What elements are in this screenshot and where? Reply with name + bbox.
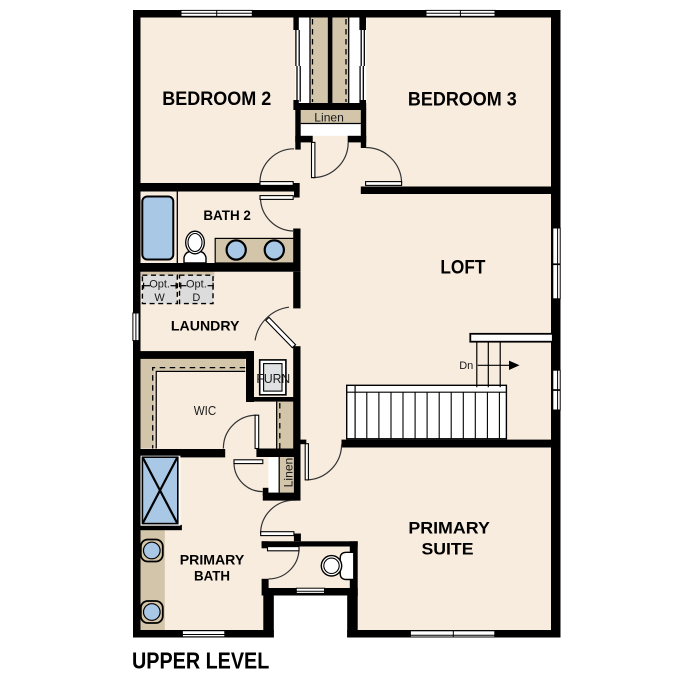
svg-text:Linen: Linen bbox=[281, 458, 295, 488]
svg-text:Opt.: Opt. bbox=[149, 279, 170, 291]
svg-text:UPPER LEVEL: UPPER LEVEL bbox=[132, 648, 269, 674]
svg-text:Linen: Linen bbox=[314, 110, 344, 124]
svg-text:BATH: BATH bbox=[194, 567, 230, 583]
svg-text:D: D bbox=[192, 292, 200, 304]
svg-text:LOFT: LOFT bbox=[440, 258, 485, 279]
svg-text:Opt.: Opt. bbox=[186, 279, 207, 291]
svg-text:WIC: WIC bbox=[194, 404, 217, 418]
svg-text:W: W bbox=[154, 292, 165, 304]
svg-text:PRIMARY: PRIMARY bbox=[180, 551, 245, 567]
svg-text:BEDROOM 2: BEDROOM 2 bbox=[162, 89, 271, 110]
svg-text:Dn: Dn bbox=[459, 360, 473, 372]
svg-text:FURN: FURN bbox=[256, 372, 290, 386]
svg-text:PRIMARY: PRIMARY bbox=[408, 519, 490, 538]
svg-text:LAUNDRY: LAUNDRY bbox=[171, 317, 240, 333]
svg-text:BATH 2: BATH 2 bbox=[203, 207, 251, 223]
svg-text:SUITE: SUITE bbox=[422, 540, 474, 559]
svg-text:BEDROOM 3: BEDROOM 3 bbox=[408, 89, 517, 110]
